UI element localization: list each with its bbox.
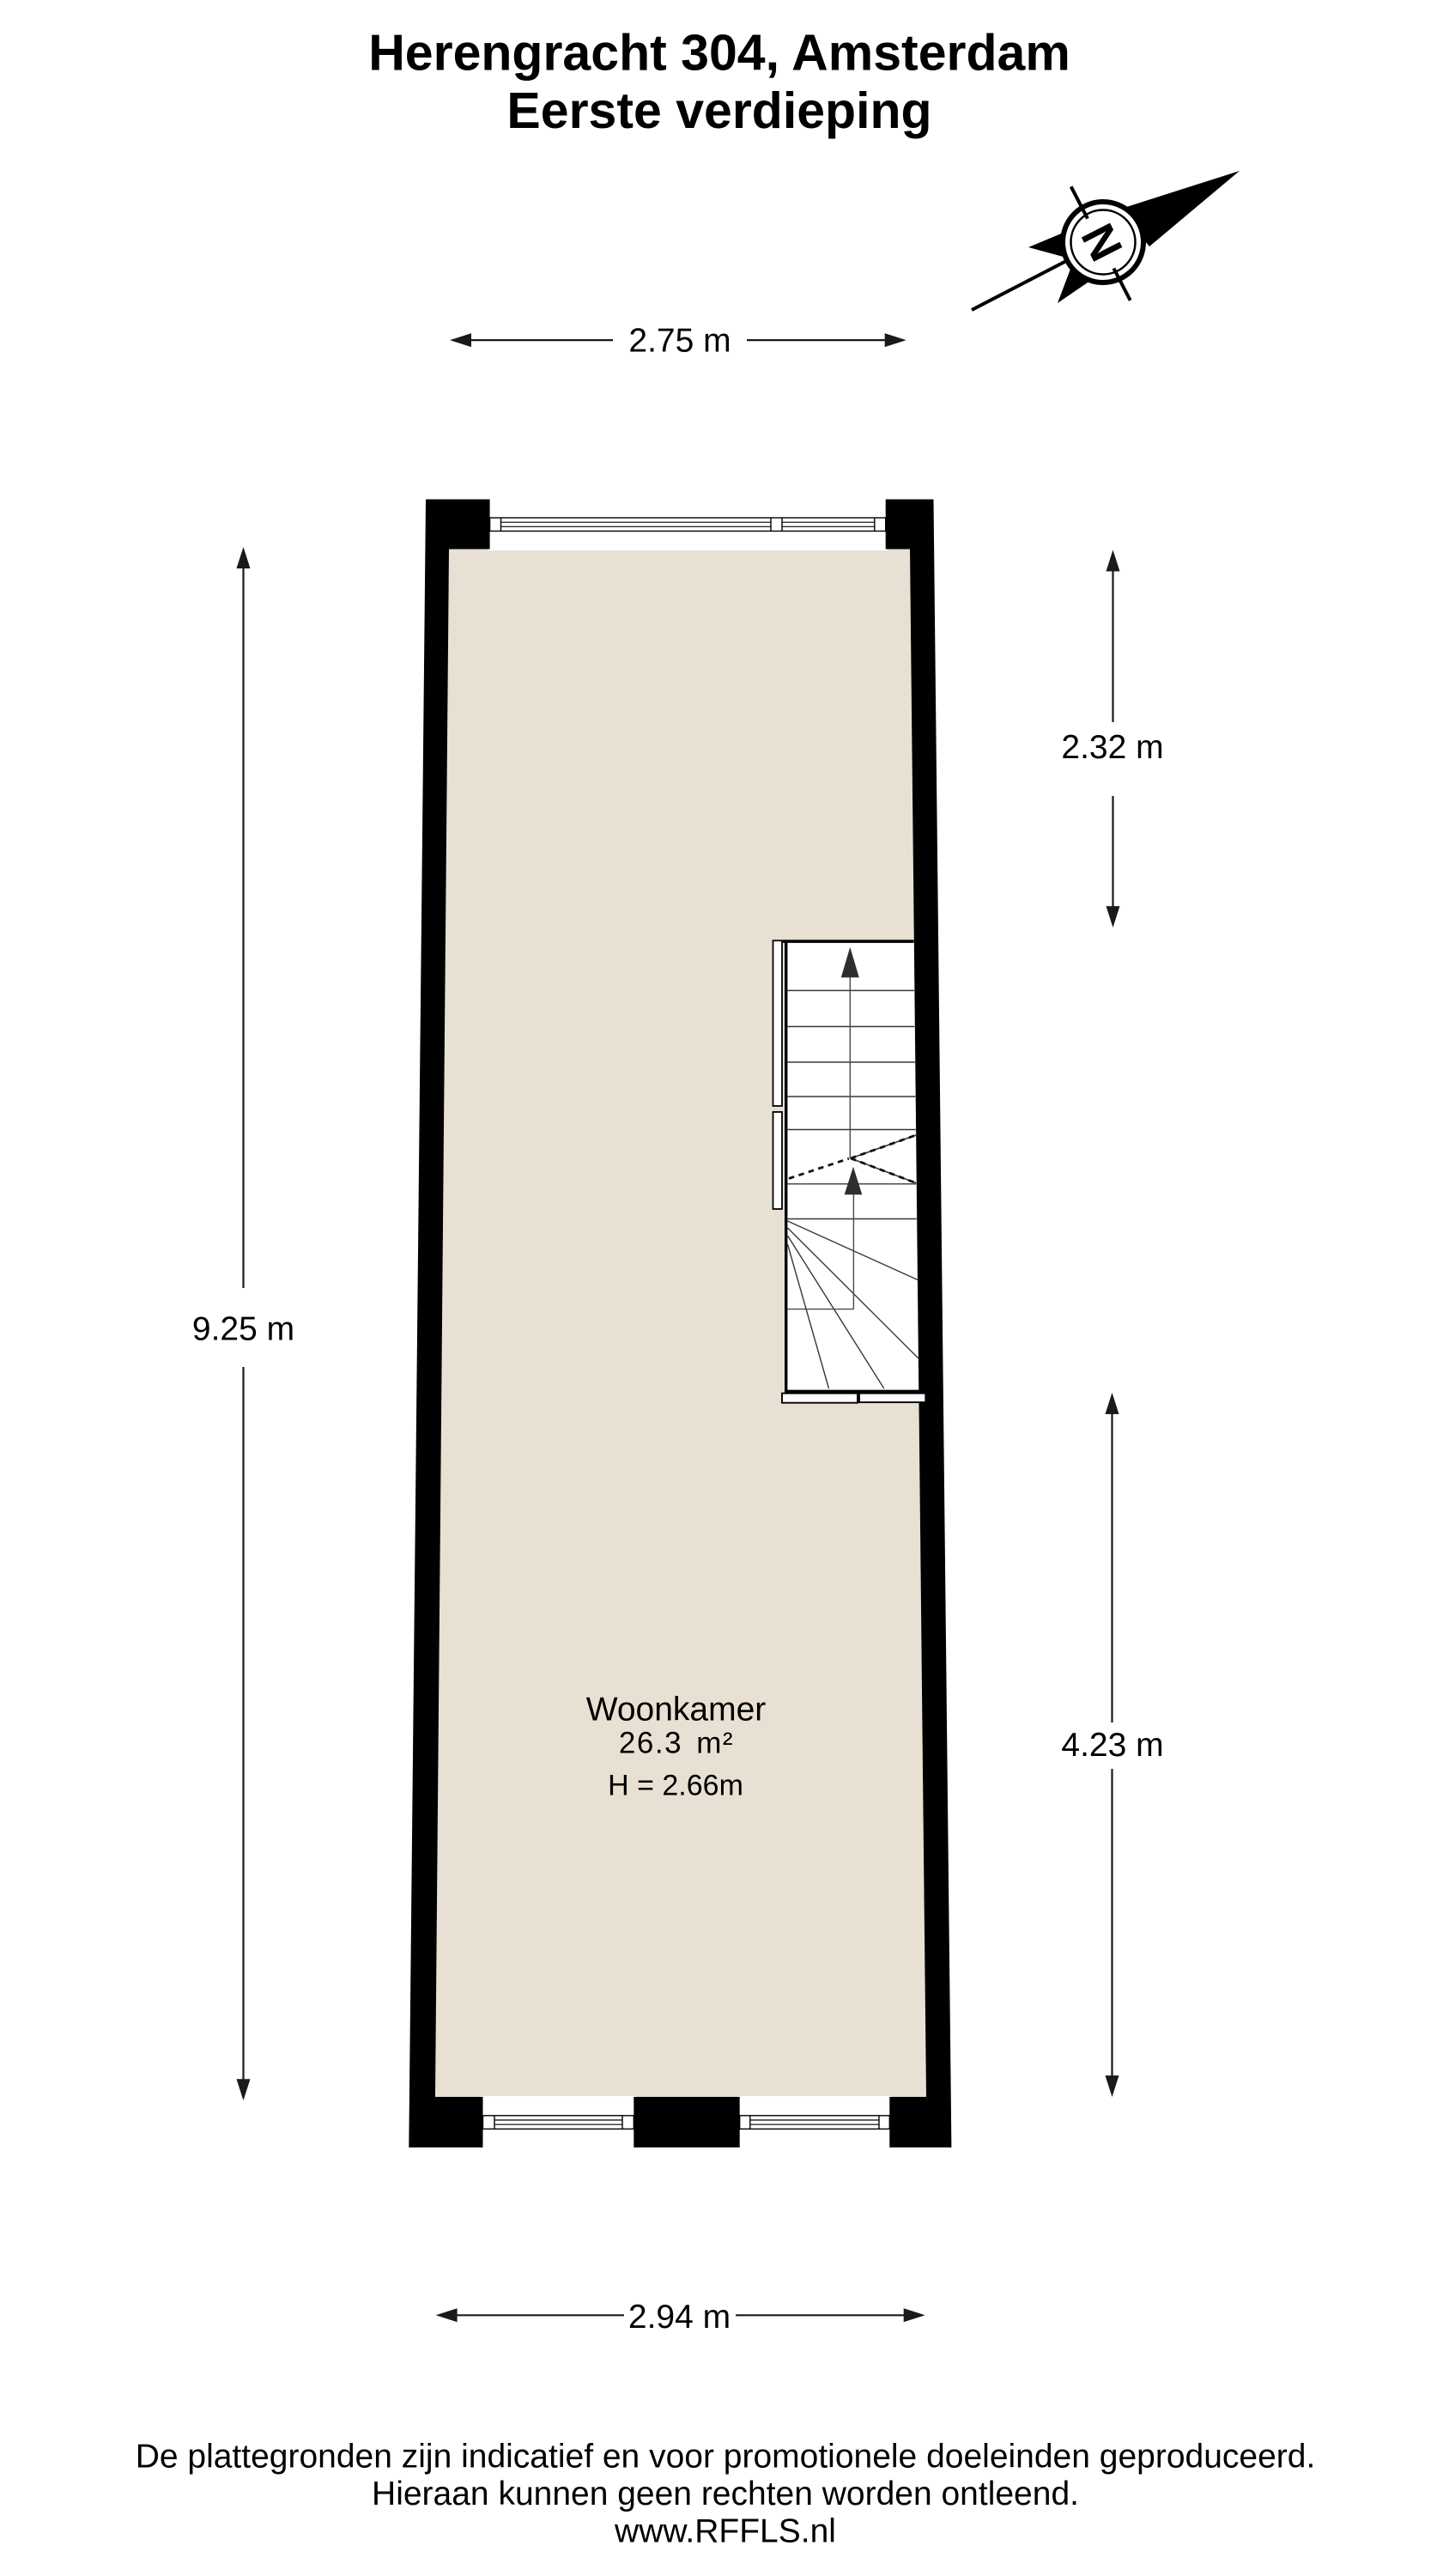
svg-text:H = 2.66m: H = 2.66m xyxy=(608,1769,743,1801)
svg-text:De plattegronden zijn indicati: De plattegronden zijn indicatief en voor… xyxy=(136,2439,1316,2476)
svg-text:9.25 m: 9.25 m xyxy=(192,1311,294,1348)
svg-text:Eerste verdieping: Eerste verdieping xyxy=(506,82,931,139)
svg-text:26.3 m²: 26.3 m² xyxy=(619,1727,734,1760)
svg-text:www.RFFLS.nl: www.RFFLS.nl xyxy=(614,2513,836,2550)
svg-text:Herengracht 304, Amsterdam: Herengracht 304, Amsterdam xyxy=(368,24,1070,81)
svg-text:Hieraan kunnen geen rechten wo: Hieraan kunnen geen rechten worden ontle… xyxy=(372,2476,1079,2512)
svg-text:Woonkamer: Woonkamer xyxy=(586,1692,767,1728)
svg-text:2.94 m: 2.94 m xyxy=(628,2299,731,2336)
svg-text:4.23 m: 4.23 m xyxy=(1061,1727,1163,1764)
svg-text:2.75 m: 2.75 m xyxy=(628,322,731,359)
svg-text:2.32 m: 2.32 m xyxy=(1061,729,1163,766)
